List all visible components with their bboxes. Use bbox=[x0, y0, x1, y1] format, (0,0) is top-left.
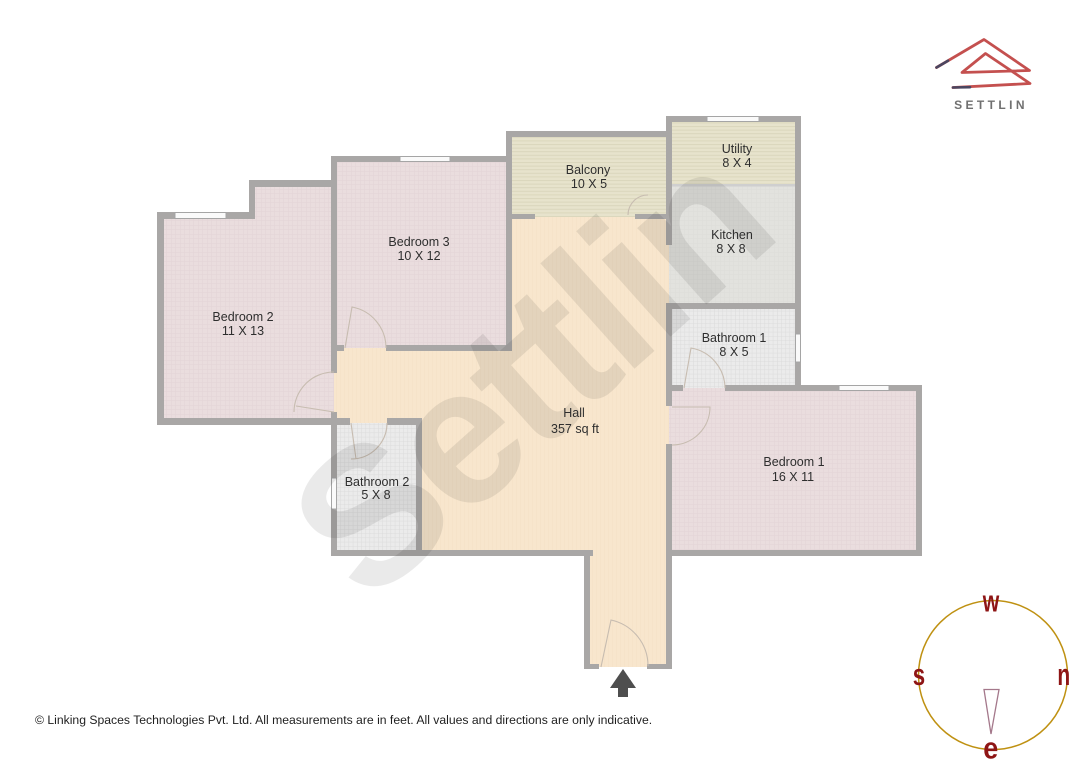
svg-text:10 X 12: 10 X 12 bbox=[397, 249, 440, 263]
svg-text:Utility: Utility bbox=[722, 142, 753, 156]
svg-text:Bathroom 2: Bathroom 2 bbox=[345, 475, 410, 489]
svg-text:n: n bbox=[1057, 657, 1070, 692]
svg-text:w: w bbox=[982, 584, 1000, 619]
svg-text:357 sq ft: 357 sq ft bbox=[551, 422, 599, 436]
svg-text:Bedroom 2: Bedroom 2 bbox=[212, 310, 273, 324]
svg-text:11 X 13: 11 X 13 bbox=[222, 324, 264, 338]
svg-text:10 X 5: 10 X 5 bbox=[571, 177, 607, 191]
svg-text:Balcony: Balcony bbox=[566, 163, 611, 177]
svg-text:Kitchen: Kitchen bbox=[711, 228, 753, 242]
svg-text:5 X 8: 5 X 8 bbox=[361, 488, 390, 502]
svg-text:Bedroom 1: Bedroom 1 bbox=[763, 455, 824, 469]
svg-text:s: s bbox=[913, 657, 925, 692]
svg-text:e: e bbox=[983, 731, 998, 764]
svg-text:Hall: Hall bbox=[563, 406, 585, 420]
svg-text:16 X 11: 16 X 11 bbox=[772, 470, 814, 484]
svg-text:Bathroom 1: Bathroom 1 bbox=[702, 331, 767, 345]
svg-text:Bedroom 3: Bedroom 3 bbox=[388, 235, 449, 249]
svg-text:8 X 8: 8 X 8 bbox=[716, 242, 745, 256]
svg-text:8 X 4: 8 X 4 bbox=[722, 156, 751, 170]
svg-text:8 X 5: 8 X 5 bbox=[719, 345, 748, 359]
svg-text:SETTLIN: SETTLIN bbox=[954, 98, 1028, 112]
svg-text:© Linking Spaces Technologies: © Linking Spaces Technologies Pvt. Ltd. … bbox=[35, 713, 652, 727]
